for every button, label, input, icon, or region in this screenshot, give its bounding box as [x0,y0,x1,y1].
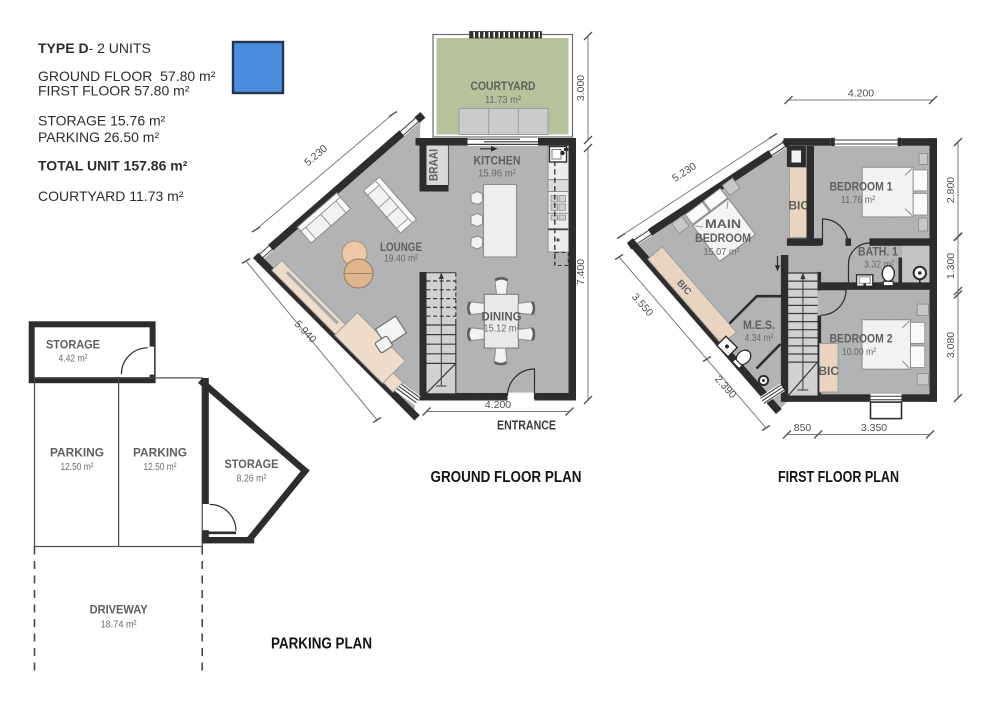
svg-text:BATH. 1: BATH. 1 [858,245,898,259]
svg-text:8.26 m²: 8.26 m² [237,474,268,485]
svg-text:4.42 m²: 4.42 m² [59,354,89,365]
svg-text:TOTAL UNIT 157.86 m²: TOTAL UNIT 157.86 m² [38,158,188,174]
svg-text:BEDROOM: BEDROOM [695,231,751,245]
svg-text:DINING: DINING [482,310,522,324]
svg-text:GROUND FLOOR PLAN: GROUND FLOOR PLAN [431,469,582,486]
svg-text:FIRST FLOOR 57.80 m²: FIRST FLOOR 57.80 m² [38,83,190,99]
svg-text:KITCHEN: KITCHEN [474,154,521,168]
svg-text:2.800: 2.800 [945,177,957,203]
svg-text:15.07 m²: 15.07 m² [704,247,741,258]
svg-text:STORAGE: STORAGE [225,457,279,471]
svg-text:MAIN: MAIN [705,217,741,231]
svg-text:TYPE D- 2 UNITS: TYPE D- 2 UNITS [38,40,151,56]
svg-text:COURTYARD: COURTYARD [471,79,536,93]
svg-text:M.E.S.: M.E.S. [743,318,775,332]
svg-text:4.200: 4.200 [485,399,511,411]
svg-text:7.400: 7.400 [575,259,587,285]
svg-text:15.96 m²: 15.96 m² [478,169,517,180]
svg-text:BEDROOM 1: BEDROOM 1 [830,180,893,194]
svg-text:12.50 m²: 12.50 m² [61,462,94,473]
svg-text:STORAGE: STORAGE [46,338,100,352]
svg-text:15.12 m²: 15.12 m² [484,324,521,335]
svg-text:PARKING PLAN: PARKING PLAN [271,636,372,653]
svg-text:BIC: BIC [818,364,839,378]
svg-text:COURTYARD 11.73 m²: COURTYARD 11.73 m² [38,188,184,204]
svg-text:10.00 m²: 10.00 m² [842,347,877,358]
svg-text:18.74 m²: 18.74 m² [101,620,138,631]
svg-text:11.76 m²: 11.76 m² [841,195,876,206]
svg-text:PARKING: PARKING [133,446,187,460]
svg-text:3.350: 3.350 [861,422,887,434]
svg-text:STORAGE 15.76 m²: STORAGE 15.76 m² [38,113,166,129]
svg-text:11.73 m²: 11.73 m² [485,95,522,106]
svg-text:4.34 m²: 4.34 m² [745,333,775,344]
svg-text:DRIVEWAY: DRIVEWAY [90,603,148,617]
svg-text:LOUNGE: LOUNGE [380,240,422,254]
svg-text:1.300: 1.300 [945,253,957,279]
svg-text:19.40 m²: 19.40 m² [384,254,419,265]
svg-text:PARKING: PARKING [50,446,104,460]
svg-text:PARKING 26.50 m²: PARKING 26.50 m² [38,129,159,145]
svg-text:3.080: 3.080 [945,332,957,358]
svg-text:3.000: 3.000 [575,75,587,101]
svg-text:4.200: 4.200 [848,88,874,100]
svg-text:FIRST FLOOR PLAN: FIRST FLOOR PLAN [778,469,899,486]
svg-text:BIC: BIC [788,199,809,213]
svg-text:BRAAI: BRAAI [427,149,441,181]
svg-text:ENTRANCE: ENTRANCE [497,418,556,433]
svg-text:12.50 m²: 12.50 m² [144,462,177,473]
svg-text:850: 850 [794,422,812,434]
svg-text:BEDROOM 2: BEDROOM 2 [830,332,893,346]
